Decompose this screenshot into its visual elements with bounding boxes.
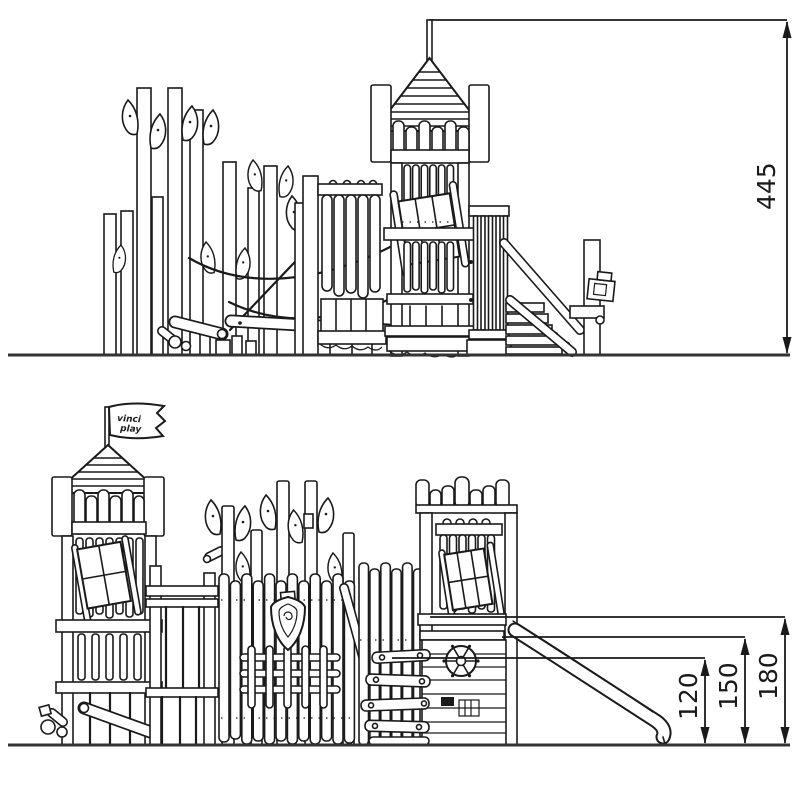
gate-tower (286, 176, 386, 355)
arrow-down-icon (701, 727, 710, 744)
dimension-label-180: 180 (754, 652, 783, 700)
right-tower (416, 477, 517, 745)
dimension-label-445: 445 (752, 162, 781, 210)
flag-text-line2: play (119, 424, 143, 435)
leaf-icon (203, 110, 219, 145)
slide (513, 621, 665, 744)
leaf-icon (248, 160, 262, 191)
leaf-icon (279, 166, 293, 197)
crenellation (416, 477, 517, 513)
periscope-post (570, 240, 616, 355)
leaf-icon (235, 506, 251, 541)
arrow-up-icon (741, 638, 750, 655)
leaf-icon (288, 510, 303, 543)
arrow-up-icon (781, 618, 790, 635)
leaf-icon (260, 495, 276, 530)
stairs (504, 243, 580, 354)
platform-structure (146, 551, 221, 745)
arrow-down-icon (783, 337, 792, 354)
side-elevation-view: 445 (8, 20, 792, 357)
arrow-down-icon (741, 727, 750, 744)
leaf-icon (205, 500, 221, 535)
technical-drawing: 445 (0, 0, 800, 800)
leaf-icon (122, 100, 138, 135)
dimension-label-150: 150 (714, 662, 743, 710)
dimension-label-120: 120 (674, 672, 703, 720)
arrow-up-icon (783, 21, 792, 38)
leaf-icon (150, 114, 166, 149)
main-tower (370, 20, 490, 357)
net-climber (240, 646, 340, 708)
crenellation (72, 490, 146, 534)
arrow-down-icon (781, 727, 790, 744)
ladder-panel (467, 206, 511, 355)
leaf-icon (318, 498, 334, 533)
flag-pole (427, 20, 432, 60)
front-elevation-view: vinci play (8, 404, 790, 746)
flag: vinci play (109, 404, 165, 439)
